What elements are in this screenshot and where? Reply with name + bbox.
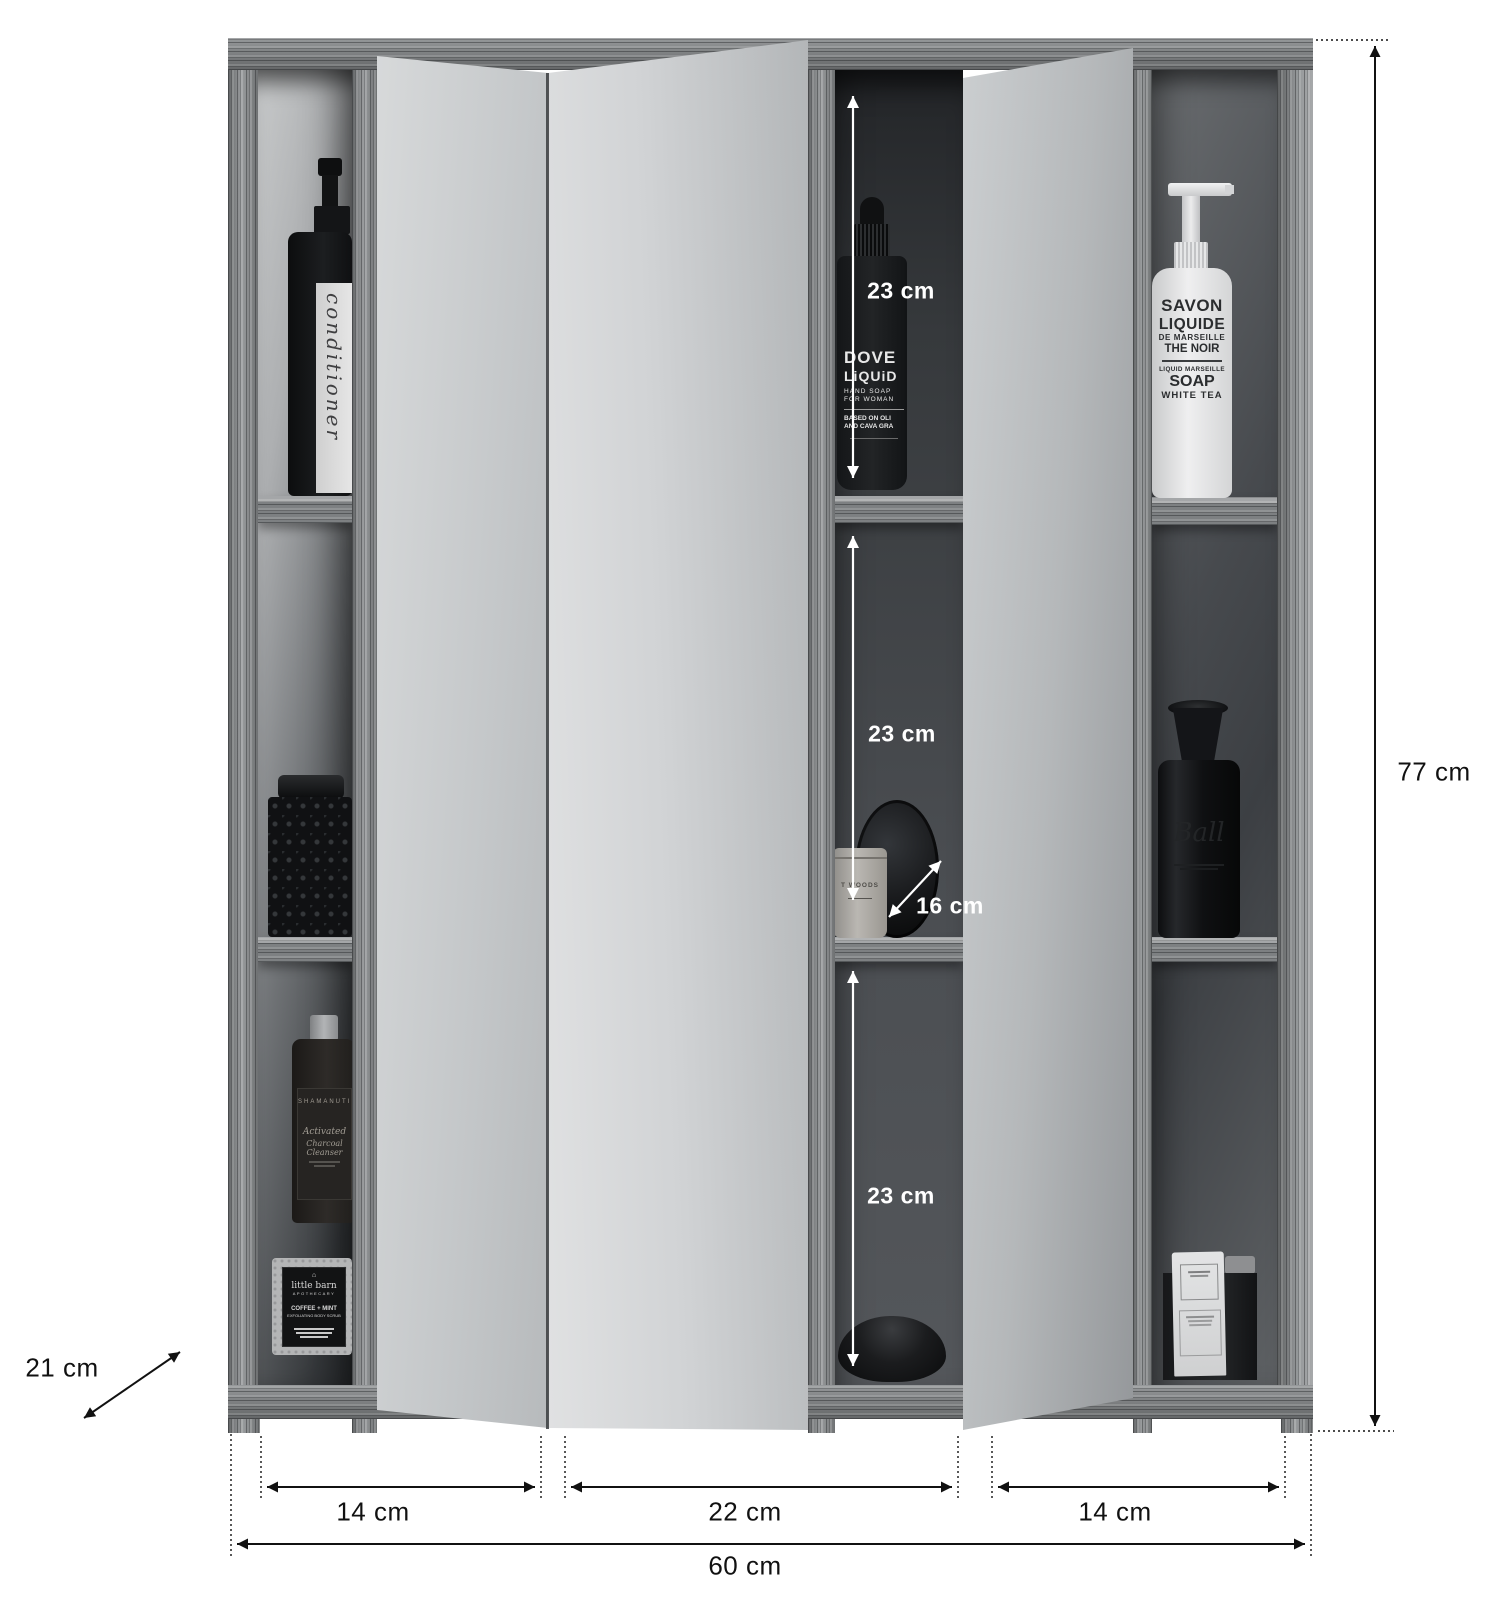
dim-label-inner-depth: 16 cm [916, 893, 984, 920]
pump-neck [322, 175, 338, 207]
divider-stile-center-left [808, 70, 835, 1390]
embossed-lines [1158, 862, 1240, 872]
label-line: BASED ON OLI [844, 415, 904, 423]
pump-head [318, 158, 342, 176]
cabinet-foot [352, 1419, 377, 1433]
cabinet-foot [1281, 1419, 1313, 1433]
shelf [1152, 497, 1277, 525]
label-line: DOVE [844, 348, 904, 368]
pump-collar [1174, 242, 1208, 270]
label-line: THE NOIR [1152, 343, 1232, 356]
dropper-collar [854, 224, 890, 258]
label-line: COFFEE + MINT [283, 1306, 345, 1313]
bottle-body: Ball [1158, 760, 1240, 938]
label-line: AND CAVA GRA [844, 423, 904, 431]
house-icon: ⌂ [283, 1272, 345, 1280]
label-line: DE MARSEILLE [1152, 333, 1232, 342]
cleanser-bottle: SHAMANUTI Activated Charcoal Cleanser [292, 1015, 355, 1223]
dim-label-center: 22 cm [708, 1497, 781, 1528]
dim-label-shelf-mid: 23 cm [868, 721, 936, 748]
soap-bottle: SAVON LIQUIDE DE MARSEILLE THE NOIR LIQU… [1152, 183, 1232, 498]
dimension-diagram: conditioner SHAMANUTI Activated Charcoal… [0, 0, 1499, 1600]
divider-stile-left [352, 70, 377, 1390]
bottle-body: SAVON LIQUIDE DE MARSEILLE THE NOIR LIQU… [1152, 268, 1232, 498]
black-bottle: Ball [1158, 700, 1240, 938]
left-stile [228, 38, 258, 1419]
jar-lid [278, 775, 344, 799]
label-fineprint [833, 896, 887, 901]
label-line: APOTHECARY [283, 1292, 345, 1297]
bottle-label: SHAMANUTI Activated Charcoal Cleanser [297, 1088, 352, 1200]
mirror-door-left-fold-a [377, 56, 548, 1430]
cabinet-foot [1133, 1419, 1152, 1433]
bottle-neck [1168, 708, 1228, 764]
label-line: SAVON [1152, 296, 1232, 316]
label-line: FOR WOMAN [844, 396, 904, 404]
conditioner-label-text: conditioner [322, 293, 346, 442]
box-label [1172, 1251, 1227, 1376]
label-line: Charcoal Cleanser [298, 1139, 351, 1157]
label-line: EXFOLIATING BODY SCRUB [283, 1314, 345, 1319]
pump-spout [1225, 185, 1234, 194]
label-line: LIQUIDE [1152, 316, 1232, 334]
jar-label: ⌂ little barn APOTHECARY COFFEE + MINT E… [282, 1267, 346, 1347]
jar-lid-line [833, 857, 887, 859]
bottle-label: SAVON LIQUIDE DE MARSEILLE THE NOIR LIQU… [1152, 296, 1232, 402]
shelf [1152, 937, 1277, 962]
shelf [835, 937, 963, 962]
dim-label-shelf-bottom: 23 cm [867, 1183, 935, 1210]
label-line: SHAMANUTI [298, 1099, 351, 1106]
item-behind [1225, 1256, 1255, 1274]
shelf [258, 496, 352, 523]
door-fold-seam [546, 73, 549, 1429]
label-rule [844, 409, 904, 410]
ornate-jar [268, 775, 352, 937]
dim-label-left-door: 14 cm [336, 1497, 409, 1528]
label-line: HAND SOAP [844, 388, 904, 396]
pump-stem [1182, 196, 1200, 242]
label-line: LIQUID MARSEILLE [1152, 366, 1232, 373]
candle-jar: T WOODS [833, 848, 887, 938]
dropper-bottle: DOVE LiQUiD HAND SOAP FOR WOMAN BASED ON… [837, 197, 907, 490]
dim-label-width: 60 cm [708, 1551, 781, 1582]
dim-label-right-door: 14 cm [1078, 1497, 1151, 1528]
label-line: LiQUiD [844, 368, 904, 385]
bottle-label: conditioner [316, 283, 352, 493]
candle-label-text: T WOODS [833, 882, 887, 889]
label-rule [1162, 360, 1222, 362]
jar-body [268, 797, 352, 937]
shelf [835, 496, 963, 523]
conditioner-bottle: conditioner [288, 155, 352, 496]
label-line: little barn [283, 1281, 345, 1291]
bottle-cap [310, 1015, 338, 1041]
label-line: WHITE TEA [1152, 391, 1232, 402]
labeled-box [1163, 1252, 1259, 1380]
pump-arm [1168, 183, 1232, 196]
dim-label-height: 77 cm [1397, 757, 1470, 788]
divider-stile-center-right [1133, 70, 1152, 1390]
label-fineprint [283, 1326, 345, 1340]
bottle-label: DOVE LiQUiD HAND SOAP FOR WOMAN BASED ON… [844, 348, 904, 441]
label-fineprint [850, 438, 898, 439]
mirror-door-left-fold-b [548, 40, 808, 1432]
embossed-text: Ball [1158, 818, 1240, 848]
label-fineprint [298, 1159, 351, 1169]
label-frame [1179, 1310, 1222, 1357]
right-side-panel [1277, 38, 1313, 1419]
dropper-bulb [860, 197, 884, 226]
shelf [258, 937, 352, 962]
cabinet-foot [808, 1419, 835, 1433]
label-line: Activated [298, 1127, 351, 1137]
label-frame [1180, 1264, 1219, 1301]
scrub-jar: ⌂ little barn APOTHECARY COFFEE + MINT E… [272, 1258, 352, 1355]
dim-label-depth: 21 cm [25, 1353, 98, 1384]
label-line: SOAP [1152, 373, 1232, 391]
mirror-door-right [963, 48, 1133, 1432]
cabinet-foot [228, 1419, 260, 1433]
pump-collar [314, 206, 350, 234]
dim-label-shelf-top: 23 cm [867, 278, 935, 305]
